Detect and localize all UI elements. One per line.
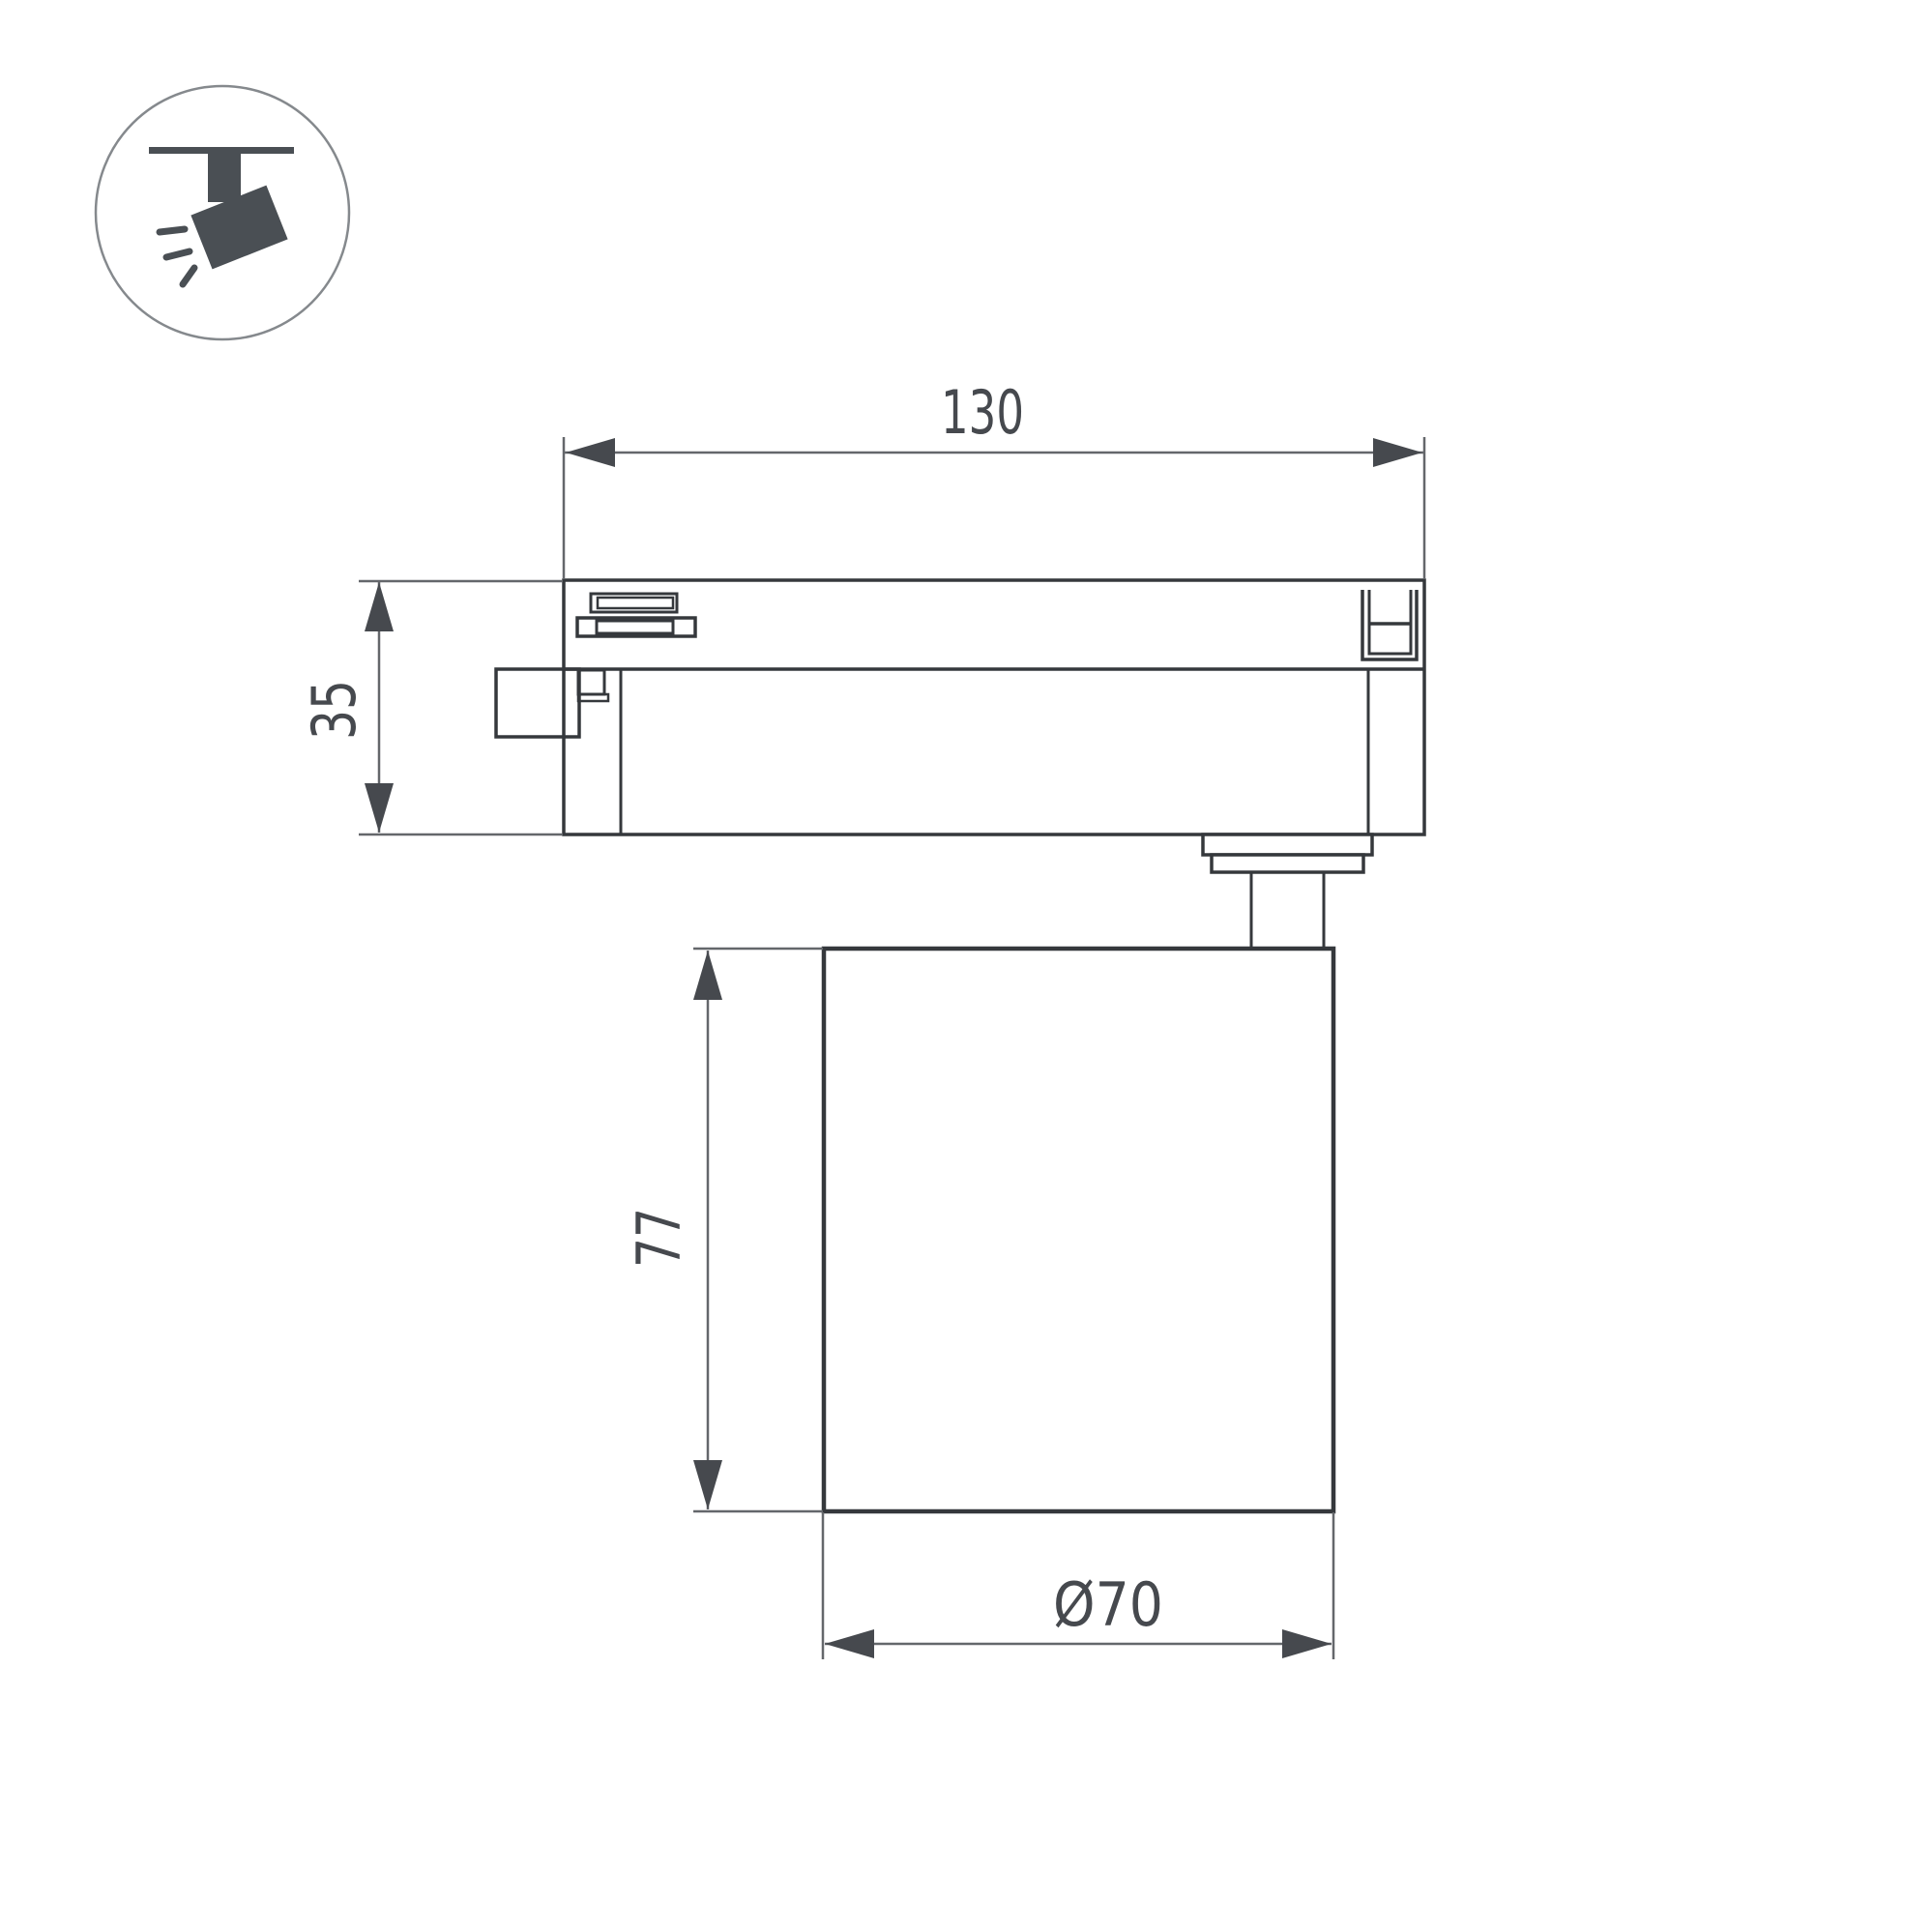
icon-stem xyxy=(208,152,241,202)
dimension-label-track-height: 35 xyxy=(299,680,369,740)
dimension-label-diameter: Ø70 xyxy=(1053,1569,1163,1640)
icon-light-ray xyxy=(160,229,185,232)
technical-drawing: 130 35 77 Ø70 xyxy=(0,0,1932,1932)
lamp-body-outline xyxy=(824,949,1333,1511)
lamp-body-view xyxy=(824,949,1333,1511)
dimension-label-body-height: 77 xyxy=(624,1208,694,1268)
flange-lower xyxy=(1212,855,1363,872)
flange-upper xyxy=(1203,834,1372,855)
track-spotlight-icon xyxy=(96,86,349,339)
drawing-canvas: 130 35 77 Ø70 xyxy=(0,0,1932,1932)
dimension-label-width: 130 xyxy=(941,377,1024,448)
